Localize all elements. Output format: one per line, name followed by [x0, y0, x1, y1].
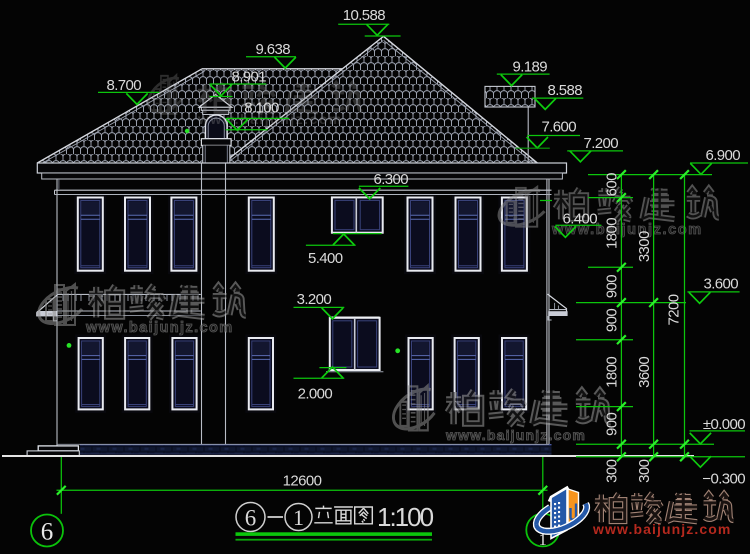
- svg-text:7.600: 7.600: [541, 119, 576, 136]
- svg-text:3.600: 3.600: [703, 276, 738, 293]
- svg-text:7.200: 7.200: [583, 135, 618, 152]
- svg-text:8.588: 8.588: [547, 82, 582, 99]
- svg-text:5.400: 5.400: [308, 250, 343, 267]
- svg-text:9.189: 9.189: [512, 59, 547, 76]
- svg-text:9.638: 9.638: [255, 41, 290, 58]
- svg-text:10.588: 10.588: [343, 7, 386, 24]
- svg-text:www.baijunjz.com: www.baijunjz.com: [592, 521, 731, 537]
- svg-text:3600: 3600: [636, 357, 653, 388]
- svg-text:6.400: 6.400: [562, 211, 597, 228]
- svg-text:6.300: 6.300: [373, 171, 408, 188]
- svg-text:6.900: 6.900: [705, 147, 740, 164]
- svg-text:6: 6: [245, 506, 257, 531]
- svg-text:3300: 3300: [636, 231, 653, 262]
- svg-text:8.100: 8.100: [244, 99, 279, 116]
- svg-text:1:100: 1:100: [377, 502, 434, 532]
- svg-text:−0.300: −0.300: [702, 471, 745, 488]
- svg-text:www.baijunjz.com: www.baijunjz.com: [445, 427, 586, 443]
- svg-text:900: 900: [604, 309, 621, 332]
- svg-text:6: 6: [41, 519, 54, 546]
- svg-text:2.000: 2.000: [298, 386, 333, 403]
- svg-text:1: 1: [293, 505, 304, 530]
- svg-text:1800: 1800: [604, 218, 621, 249]
- svg-text:300: 300: [604, 459, 621, 482]
- svg-text:12600: 12600: [283, 473, 322, 490]
- svg-text:900: 900: [604, 275, 621, 298]
- svg-text:±0.000: ±0.000: [703, 416, 745, 433]
- svg-text:8.700: 8.700: [106, 77, 141, 94]
- svg-text:900: 900: [604, 413, 621, 436]
- svg-text:600: 600: [604, 173, 621, 196]
- svg-text:www.baijunjz.com: www.baijunjz.com: [85, 320, 234, 336]
- svg-text:300: 300: [636, 459, 653, 482]
- svg-text:1800: 1800: [604, 357, 621, 388]
- svg-text:8.901: 8.901: [231, 69, 266, 86]
- svg-text:3.200: 3.200: [297, 291, 332, 308]
- svg-text:7200: 7200: [666, 294, 683, 325]
